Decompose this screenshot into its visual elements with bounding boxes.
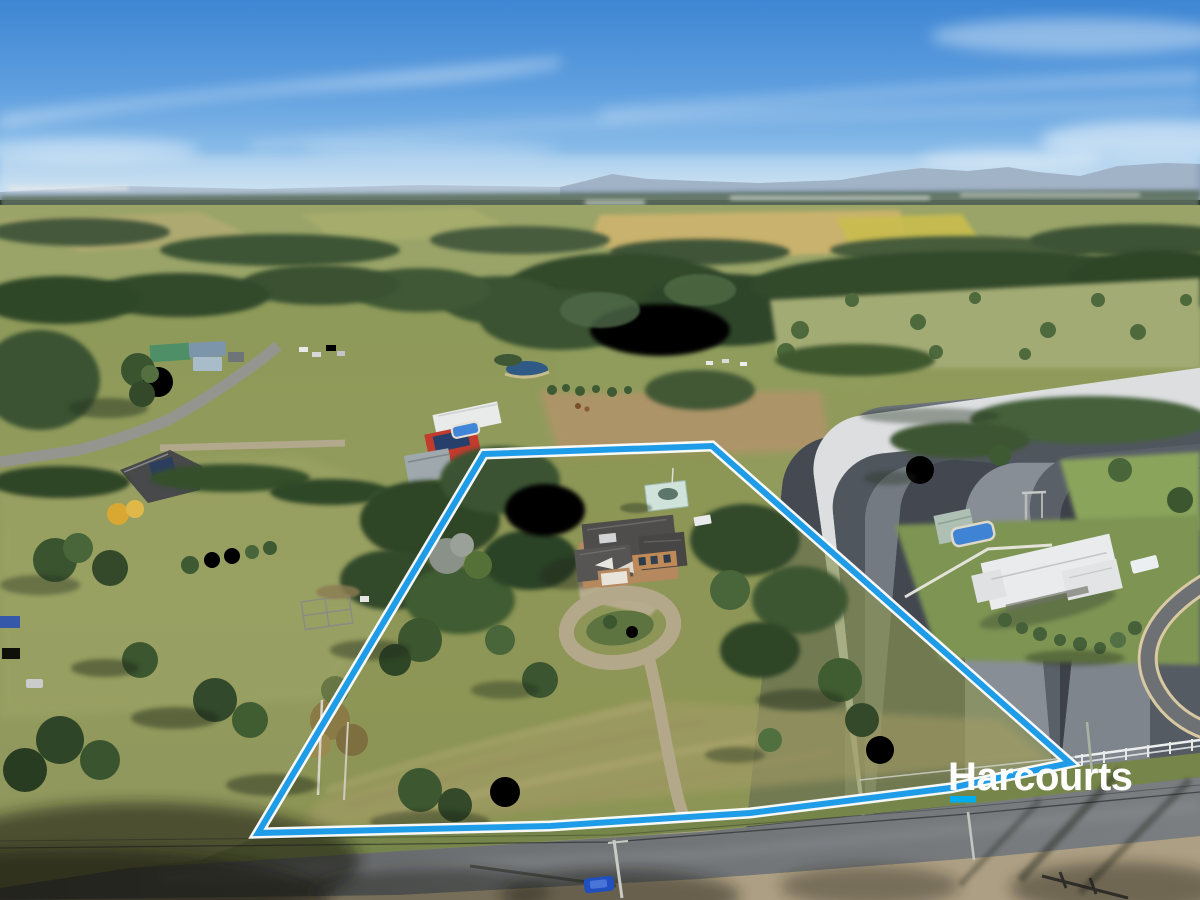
watermark-text: Harcourts (948, 755, 1132, 799)
blue-trailer (0, 616, 20, 628)
flag-pole (672, 468, 673, 486)
watermark: Harcourts (948, 755, 1132, 803)
silver-car (26, 679, 43, 688)
scene-canvas: Harcourts (0, 0, 1200, 900)
gravel-lane (160, 443, 345, 448)
aerial-property-photo: Harcourts (0, 0, 1200, 900)
watermark-underline (950, 796, 976, 803)
